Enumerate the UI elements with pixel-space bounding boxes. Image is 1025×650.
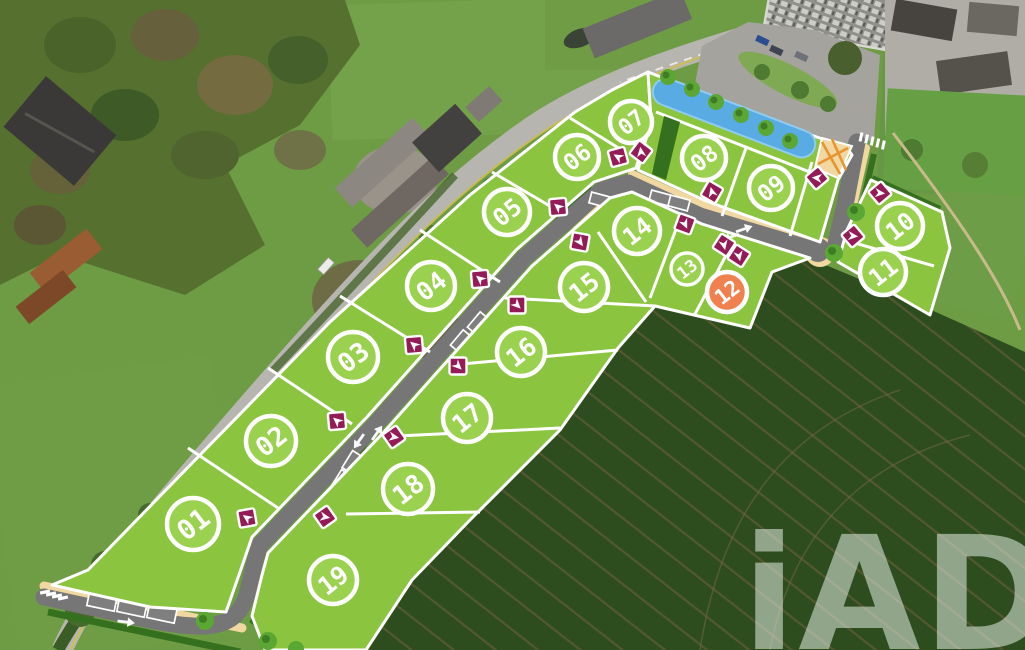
lot-05: 05 xyxy=(484,189,530,235)
lot-16: 16 xyxy=(497,328,545,376)
lot-10: 10 xyxy=(877,203,923,249)
lot-14: 14 xyxy=(614,208,660,254)
plan-scene: 01020304050607080910111213141516171819 xyxy=(0,0,1025,650)
lot-12: 12 xyxy=(707,272,747,312)
lot-01: 01 xyxy=(167,498,219,550)
lot-03: 03 xyxy=(328,332,378,382)
lot-02: 02 xyxy=(246,416,296,466)
lot-06: 06 xyxy=(555,135,599,179)
lot-19: 19 xyxy=(309,556,357,604)
lot-07: 07 xyxy=(610,101,652,143)
lot-11: 11 xyxy=(860,249,906,295)
aerial-development-plan: 01020304050607080910111213141516171819 i… xyxy=(0,0,1025,650)
lot-04: 04 xyxy=(407,262,455,310)
lot-09: 09 xyxy=(749,166,793,210)
lot-13: 13 xyxy=(671,253,703,285)
lot-15: 15 xyxy=(560,263,608,311)
lot-18: 18 xyxy=(383,464,433,514)
lot-17: 17 xyxy=(443,394,491,442)
lot-08: 08 xyxy=(682,136,726,180)
top-right-buildings xyxy=(882,0,1025,196)
